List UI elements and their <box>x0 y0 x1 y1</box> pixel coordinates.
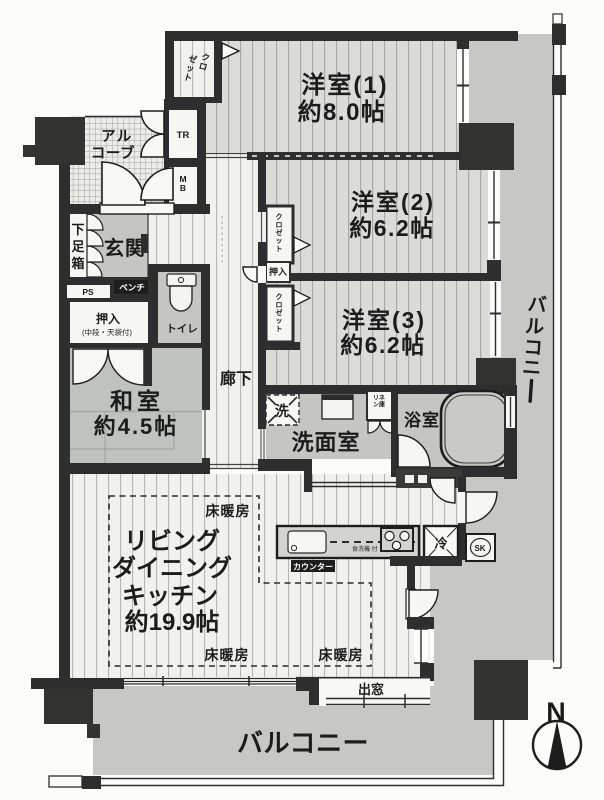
svg-text:廊下: 廊下 <box>220 369 252 388</box>
svg-text:食洗機 付: 食洗機 付 <box>352 545 378 553</box>
svg-text:洋室(1): 洋室(1) <box>301 71 388 99</box>
svg-text:床暖房: 床暖房 <box>205 647 250 663</box>
svg-text:SK: SK <box>474 544 485 553</box>
svg-text:バルコニー: バルコニー <box>237 728 369 758</box>
svg-text:床暖房: 床暖房 <box>206 503 251 519</box>
svg-text:キッチン: キッチン <box>122 583 218 610</box>
svg-text:クロゼット: クロゼット <box>276 212 283 253</box>
svg-text:約6.2帖: 約6.2帖 <box>340 332 425 358</box>
svg-text:アル: アル <box>101 129 133 145</box>
svg-text:約6.2帖: 約6.2帖 <box>349 215 434 241</box>
svg-text:約19.9帖: 約19.9帖 <box>125 608 220 636</box>
svg-text:MB: MB <box>179 174 186 193</box>
svg-text:洋室(2): 洋室(2) <box>351 189 435 215</box>
svg-text:TR: TR <box>177 130 190 141</box>
svg-text:押入: 押入 <box>96 311 120 326</box>
svg-text:カウンター: カウンター <box>293 562 333 572</box>
svg-text:ダイニング: ダイニング <box>112 554 232 582</box>
svg-text:クロゼット: クロゼット <box>276 292 283 333</box>
svg-text:和室: 和室 <box>110 388 164 414</box>
svg-text:出窓: 出窓 <box>358 682 384 697</box>
svg-text:床暖房: 床暖房 <box>319 647 364 663</box>
svg-text:リネン庫: リネン庫 <box>373 394 385 409</box>
svg-text:コーブ: コーブ <box>91 144 135 162</box>
svg-text:冷: 冷 <box>434 536 447 551</box>
svg-text:洗面室: 洗面室 <box>291 430 360 455</box>
svg-text:下足箱: 下足箱 <box>71 222 85 271</box>
svg-text:約8.0帖: 約8.0帖 <box>298 98 387 126</box>
svg-text:浴室: 浴室 <box>404 410 440 430</box>
svg-text:ベンチ: ベンチ <box>119 283 145 293</box>
svg-text:トイレ: トイレ <box>166 323 198 335</box>
svg-text:洗: 洗 <box>275 403 289 419</box>
svg-text:リビング: リビング <box>124 528 220 555</box>
svg-text:洋室(3): 洋室(3) <box>342 307 426 333</box>
svg-text:約4.5帖: 約4.5帖 <box>94 414 179 439</box>
svg-text:玄関: 玄関 <box>104 236 146 260</box>
svg-text:押入: 押入 <box>269 266 287 277</box>
svg-text:PS: PS <box>82 287 94 297</box>
svg-text:(中段・天袋付): (中段・天袋付) <box>82 327 132 337</box>
